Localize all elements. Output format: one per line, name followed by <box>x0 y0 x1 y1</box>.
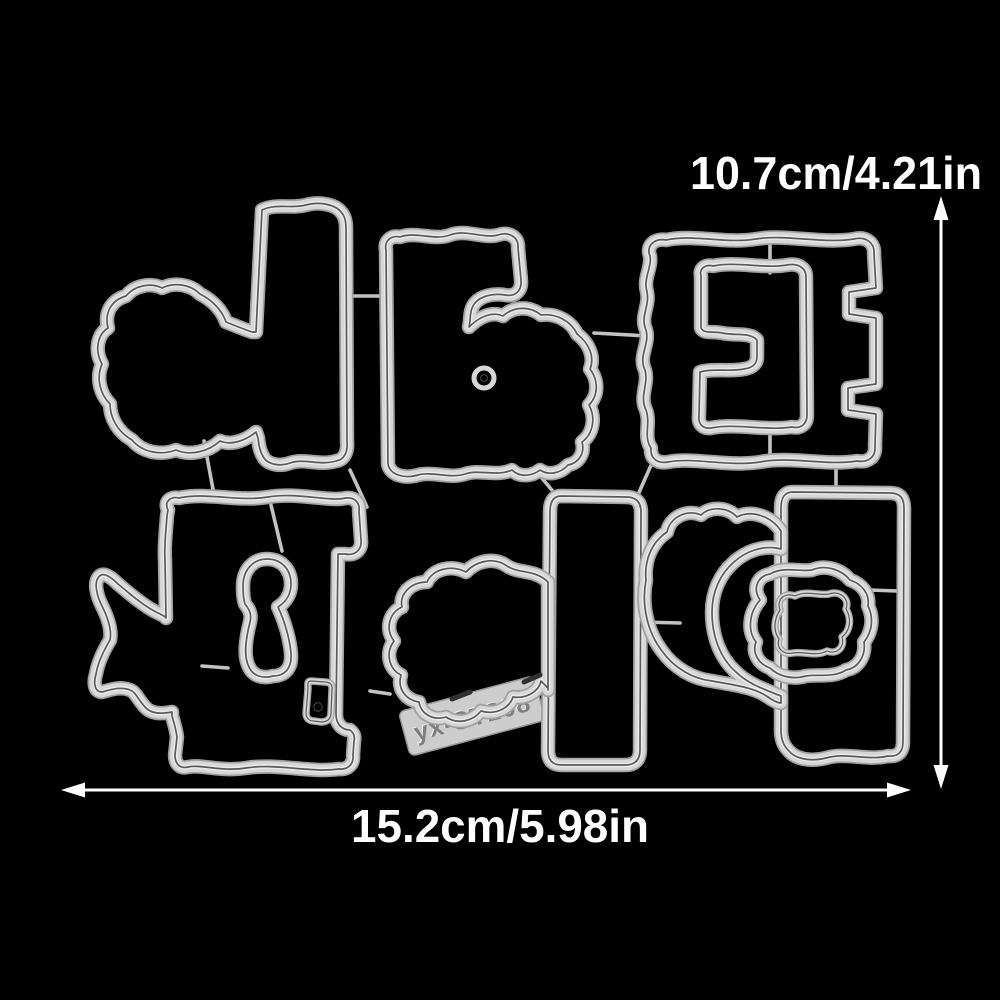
die-stroke-layer <box>98 203 347 464</box>
die-stroke-layer <box>386 233 597 476</box>
vertical-dimension-arrow <box>934 196 949 789</box>
die-stroke-layer <box>781 492 904 760</box>
die-stroke-layer <box>95 496 361 770</box>
die-stroke-layer <box>386 233 597 476</box>
pin-hole <box>314 703 322 711</box>
die-stroke-layer <box>548 496 641 765</box>
die-stroke-layer <box>98 203 347 464</box>
die-stroke-layer <box>95 496 361 770</box>
die-stroke-layer <box>98 203 347 464</box>
arrow-down-icon <box>934 765 949 789</box>
slot-die <box>306 681 332 722</box>
arrow-up-icon <box>934 196 949 220</box>
fish-tail-block-die <box>95 496 361 770</box>
blob-inner-die <box>750 568 871 678</box>
die-stroke-layer <box>548 496 641 765</box>
keyhole-inner-die <box>243 559 291 677</box>
die-stroke-layer <box>95 496 361 770</box>
die-stroke-layer <box>548 496 641 765</box>
die-stroke-layer <box>781 492 904 760</box>
teddy-bear-with-bar-die <box>98 203 347 464</box>
die-stroke-layer <box>386 233 597 476</box>
die-stroke-layer <box>781 492 904 760</box>
block-with-rabbit-die <box>386 233 597 476</box>
die-stroke-layer <box>98 203 347 464</box>
horizontal-dimension-arrow <box>61 783 911 798</box>
arrow-left-icon <box>61 783 85 798</box>
product-photo: yx-ST208 yx-ST208 10.7cm/4.21in <box>0 0 1000 1000</box>
die-set-illustration: yx-ST208 yx-ST208 10.7cm/4.21in <box>0 0 1000 1000</box>
die-stroke-layer <box>386 233 597 476</box>
die-stroke-layer <box>699 264 807 428</box>
die-stroke-layer <box>95 496 361 770</box>
die-stroke-layer <box>781 492 904 760</box>
e-shape-inner-die <box>699 264 807 428</box>
arrow-right-icon <box>887 783 911 798</box>
pin-hole <box>481 375 488 382</box>
width-dimension-label: 15.2cm/5.98in <box>351 800 649 852</box>
height-dimension-label: 10.7cm/4.21in <box>690 147 982 199</box>
die-stroke-layer <box>548 496 641 765</box>
